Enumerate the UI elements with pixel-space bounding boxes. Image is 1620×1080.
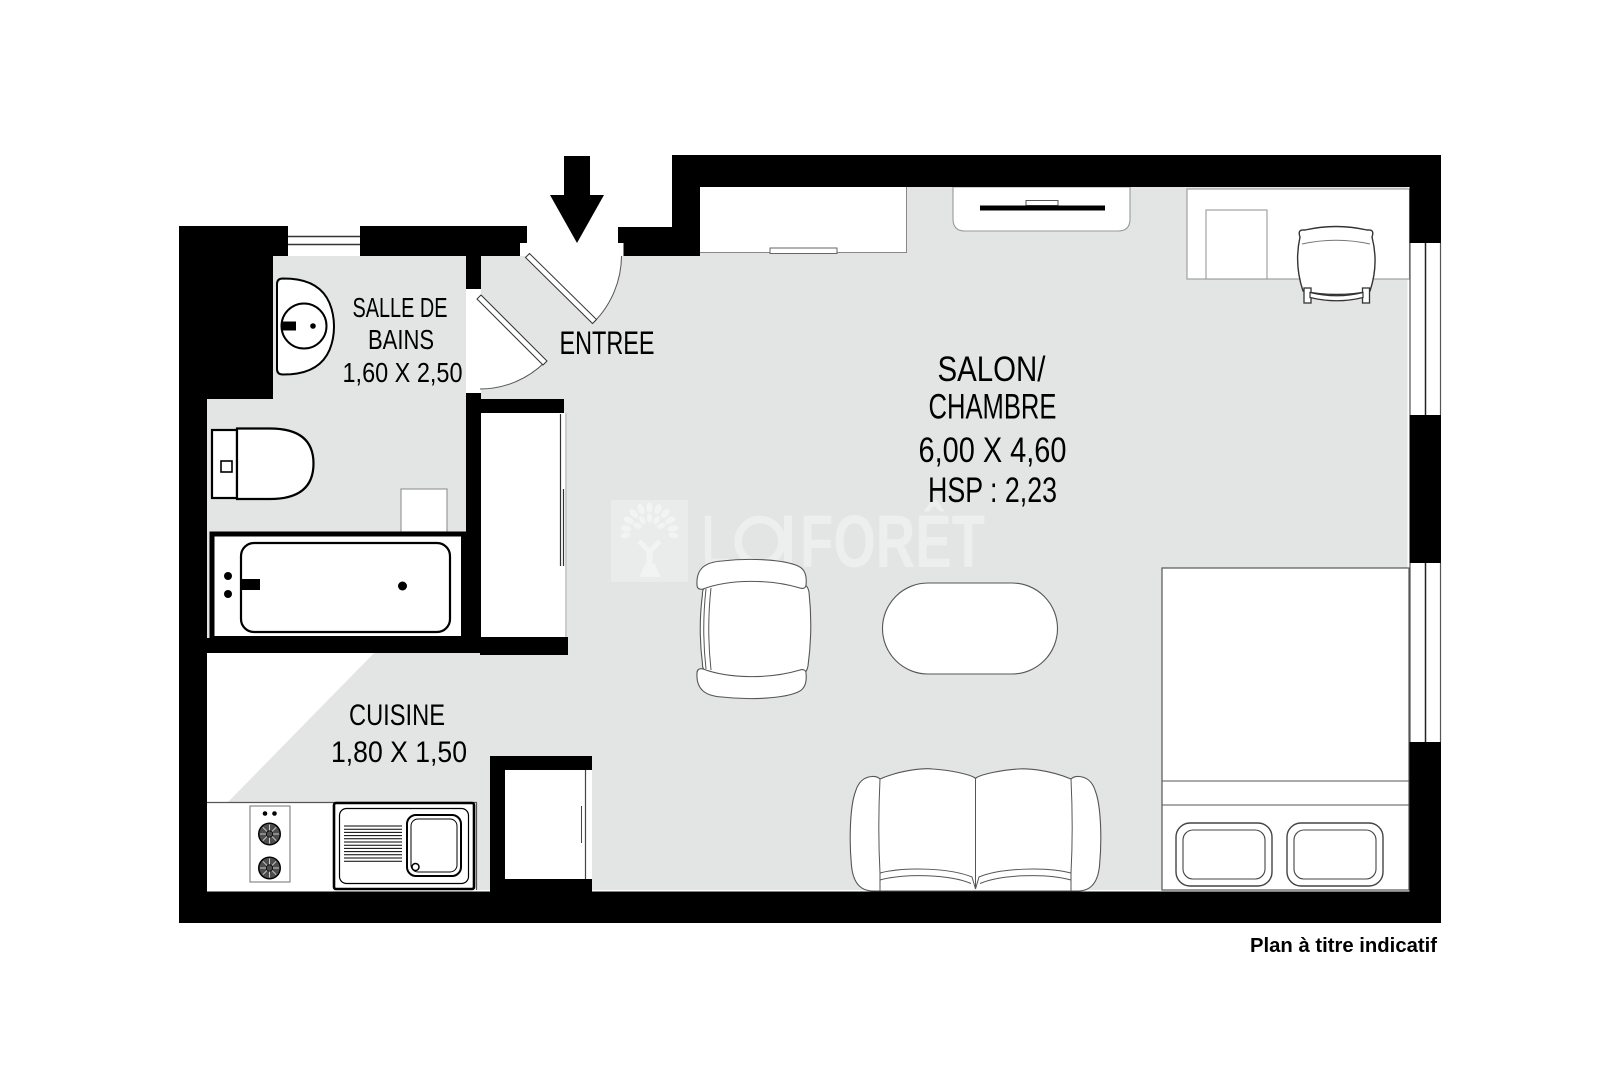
svg-text:CHAMBRE: CHAMBRE xyxy=(929,388,1057,427)
svg-text:Plan à titre indicatif: Plan à titre indicatif xyxy=(1250,935,1437,957)
svg-text:CUISINE: CUISINE xyxy=(349,699,445,732)
svg-text:1,60 X 2,50: 1,60 X 2,50 xyxy=(343,357,463,388)
svg-text:1,80 X 1,50: 1,80 X 1,50 xyxy=(331,736,467,769)
svg-text:SALON/: SALON/ xyxy=(938,350,1046,389)
svg-text:FORÊT: FORÊT xyxy=(800,500,985,583)
svg-text:ENTREE: ENTREE xyxy=(560,325,655,361)
svg-text:SALLE DE: SALLE DE xyxy=(353,292,448,323)
svg-text:6,00 X 4,60: 6,00 X 4,60 xyxy=(919,431,1067,470)
svg-text:BAINS: BAINS xyxy=(368,324,434,355)
svg-text:HSP : 2,23: HSP : 2,23 xyxy=(928,471,1057,510)
